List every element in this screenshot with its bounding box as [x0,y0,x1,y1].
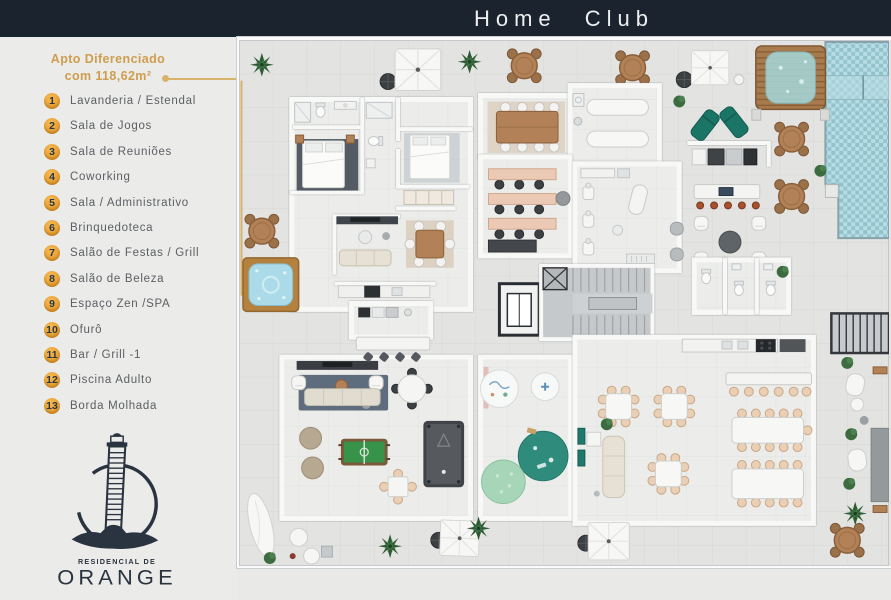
legend-item-12: 12Piscina Adulto [44,372,231,388]
legend-item-1: 1Lavanderia / Estendal [44,93,231,109]
legend-label: Sala de Jogos [70,120,152,132]
pergola-trellis [831,313,889,353]
legend-number-badge: 10 [44,322,60,338]
umbrella-icon [395,49,441,91]
restrooms [694,260,788,313]
long-table-1 [732,409,812,452]
ofuro-deck [752,46,830,120]
legend-item-4: 4Coworking [44,169,231,185]
legend-item-7: 7Salão de Festas / Grill [44,245,231,261]
serving-counter [356,337,430,350]
green-play-rug [482,460,526,504]
orange-lighthouse-logo: RESIDENCIAL DE ORANGE [42,430,192,595]
pool-table [425,422,463,485]
logo-name: ORANGE [57,565,177,590]
teal-play-rug [518,431,568,481]
wet-deck-step [825,185,838,198]
party-hall [575,337,814,523]
floorplan-panel: .room{fill:url(#tin);stroke:#f8f8f7;stro… [237,37,891,568]
amenities-legend: 1Lavanderia / Estendal 2Sala de Jogos 3S… [44,93,231,423]
legend-label: Sala / Administrativo [70,197,189,209]
legend-item-8: 8Salão de Beleza [44,271,231,287]
garden-path [871,428,889,501]
legend-label: Borda Molhada [70,400,157,412]
legend-label: Sala de Reuniões [70,146,172,158]
legend-label: Salão de Beleza [70,273,164,285]
legend-label: Salão de Festas / Grill [70,247,199,259]
legend-number-badge: 7 [44,245,60,261]
kids-room [481,357,570,518]
terrace-table [507,49,541,83]
games-room [282,357,471,518]
legend-number-badge: 11 [44,347,60,363]
legend-number-badge: 6 [44,220,60,236]
styling-chairs [583,183,594,255]
coworking-area [481,157,570,256]
legend-label: Piscina Adulto [70,374,152,386]
legend-label: Ofurô [70,324,102,336]
legend-label: Espaço Zen /SPA [70,298,170,310]
leader-line [168,78,237,80]
legend-number-badge: 12 [44,372,60,388]
legend-number-badge: 13 [44,398,60,414]
legend-item-2: 2Sala de Jogos [44,118,231,134]
legend-item-3: 3Sala de Reuniões [44,144,231,160]
legend-label: Lavanderia / Estendal [70,95,196,107]
top-bar: Home Club [0,0,891,37]
meeting-room [481,95,570,156]
legend-number-badge: 9 [44,296,60,312]
beauty-salon [575,164,679,271]
legend-number-badge: 1 [44,93,60,109]
drying-table [587,99,649,115]
legend-label: Bar / Grill -1 [70,349,141,361]
hall-bar-counter [726,373,811,385]
hall-sofa [603,436,625,497]
legend-number-badge: 5 [44,195,60,211]
legend-item-11: 11Bar / Grill -1 [44,347,231,363]
laundry-room [570,86,659,164]
page: { "header": { "title": "Home Club" }, "s… [0,0,891,600]
legend-item-13: 13Borda Molhada [44,398,231,414]
floorplan-rendering: .room{fill:url(#tin);stroke:#f8f8f7;stro… [239,40,889,566]
stairs [541,266,652,339]
legend-item-9: 9Espaço Zen /SPA [44,296,231,312]
sidebar: Apto Diferenciado com 118,62m² 1Lavander… [0,37,237,600]
page-title: Home Club [237,0,891,37]
legend-number-badge: 2 [44,118,60,134]
legend-number-badge: 3 [44,144,60,160]
legend-number-badge: 4 [44,169,60,185]
legend-item-6: 6Brinquedoteca [44,220,231,236]
elevator [499,284,539,336]
legend-label: Brinquedoteca [70,222,153,234]
legend-number-badge: 8 [44,271,60,287]
legend-item-5: 5Sala / Administrativo [44,195,231,211]
legend-item-10: 10Ofurô [44,322,231,338]
apartment-unit [292,99,471,333]
lighthouse-icon [62,433,172,559]
foosball-table [338,440,390,464]
legend-label: Coworking [70,171,131,183]
ofuro-water [766,52,816,104]
callout-line1: Apto Diferenciado [28,51,188,68]
